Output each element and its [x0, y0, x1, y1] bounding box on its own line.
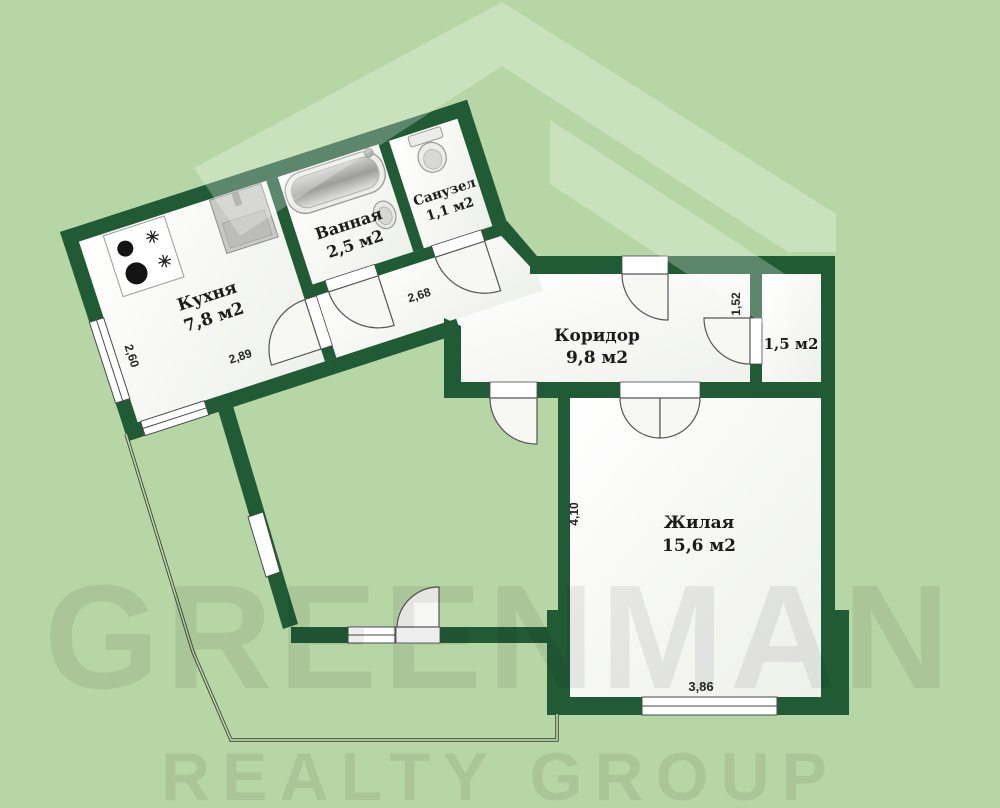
living-side-dim: 4,10	[567, 502, 581, 526]
balcony-door-threshold	[490, 382, 537, 398]
storage-threshold	[750, 318, 762, 364]
living-area-label: 15,6 м2	[662, 536, 736, 556]
storage-area-label: 1,5 м2	[764, 335, 819, 353]
living-bottom-dim: 3,86	[688, 679, 713, 694]
living-name-label: Жилая	[664, 513, 734, 533]
floor-plan-page: GREENMAN REALTY GROUP Кухня 7,8 м2 Ванна…	[0, 0, 1000, 808]
storage-side-dim: 1,52	[729, 292, 743, 316]
living-door-threshold	[620, 382, 700, 398]
watermark-brand-top: GREENMAN	[44, 555, 955, 720]
entrance-threshold	[622, 256, 668, 274]
corridor-name-label: Коридор	[554, 326, 640, 346]
watermark-brand-bottom: REALTY GROUP	[161, 739, 839, 808]
floor-plan: GREENMAN REALTY GROUP Кухня 7,8 м2 Ванна…	[0, 0, 1000, 808]
corridor-area-label: 9,8 м2	[566, 348, 628, 368]
